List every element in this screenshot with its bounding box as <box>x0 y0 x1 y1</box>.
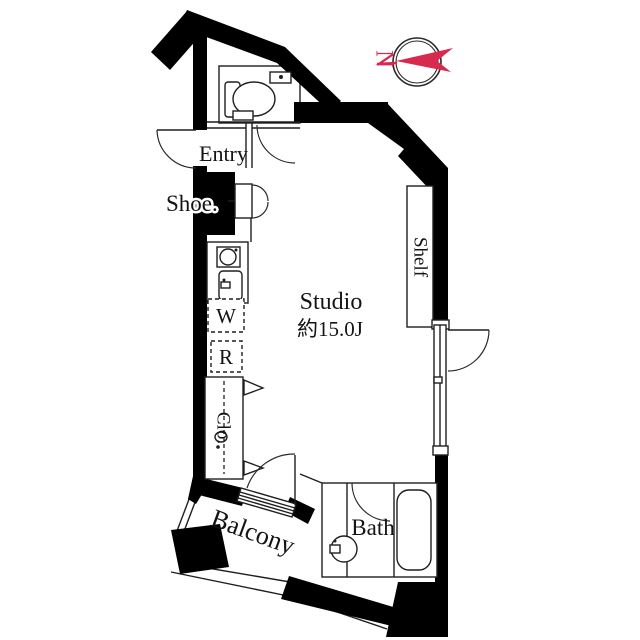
window-mid-latch <box>434 377 442 383</box>
bath-label: Bath <box>351 515 395 540</box>
shoe-door-arc-bottom <box>252 202 268 218</box>
washbasin-spout <box>330 545 340 553</box>
shoe-label: Shoe. <box>166 191 218 216</box>
entry-label: Entry <box>199 141 248 166</box>
washbasin-dot <box>334 540 337 543</box>
entry-door-arc <box>157 130 196 168</box>
studio-size-label: 約15.0J <box>297 317 363 341</box>
compass-north-letter: N <box>371 50 398 68</box>
washer-label: W <box>216 304 236 328</box>
compass: N <box>371 38 454 86</box>
bathtub <box>397 490 431 570</box>
closet-rod-dot <box>216 445 220 449</box>
toilet-base <box>233 111 253 120</box>
fridge-label: R <box>219 345 233 369</box>
studio-bath-edge <box>300 474 322 483</box>
window-door-arc <box>448 330 489 371</box>
floor-plan-canvas: Entry Shoe. W R Clo. Studio 約15.0J Shelf… <box>0 0 640 640</box>
shelf-label: Shelf <box>410 237 431 278</box>
shoe-cabinet <box>235 184 252 218</box>
compass-needle-icon <box>396 48 453 72</box>
balcony-outer-edge <box>171 572 293 597</box>
toilet-door-arc <box>257 125 295 163</box>
floor-plan-drawing: Entry Shoe. W R Clo. Studio 約15.0J Shelf… <box>0 0 640 640</box>
sink-faucet <box>221 282 230 288</box>
studio-label: Studio <box>300 289 363 315</box>
toilet-panel-dot <box>279 75 283 79</box>
shoe-door-arc-top <box>252 185 268 201</box>
closet-door-panel-top <box>244 380 263 395</box>
closet-label: Clo. <box>213 412 234 444</box>
stove-knob <box>235 249 238 252</box>
faucet-dot <box>223 279 226 282</box>
window-jamb-bottom <box>433 446 448 455</box>
